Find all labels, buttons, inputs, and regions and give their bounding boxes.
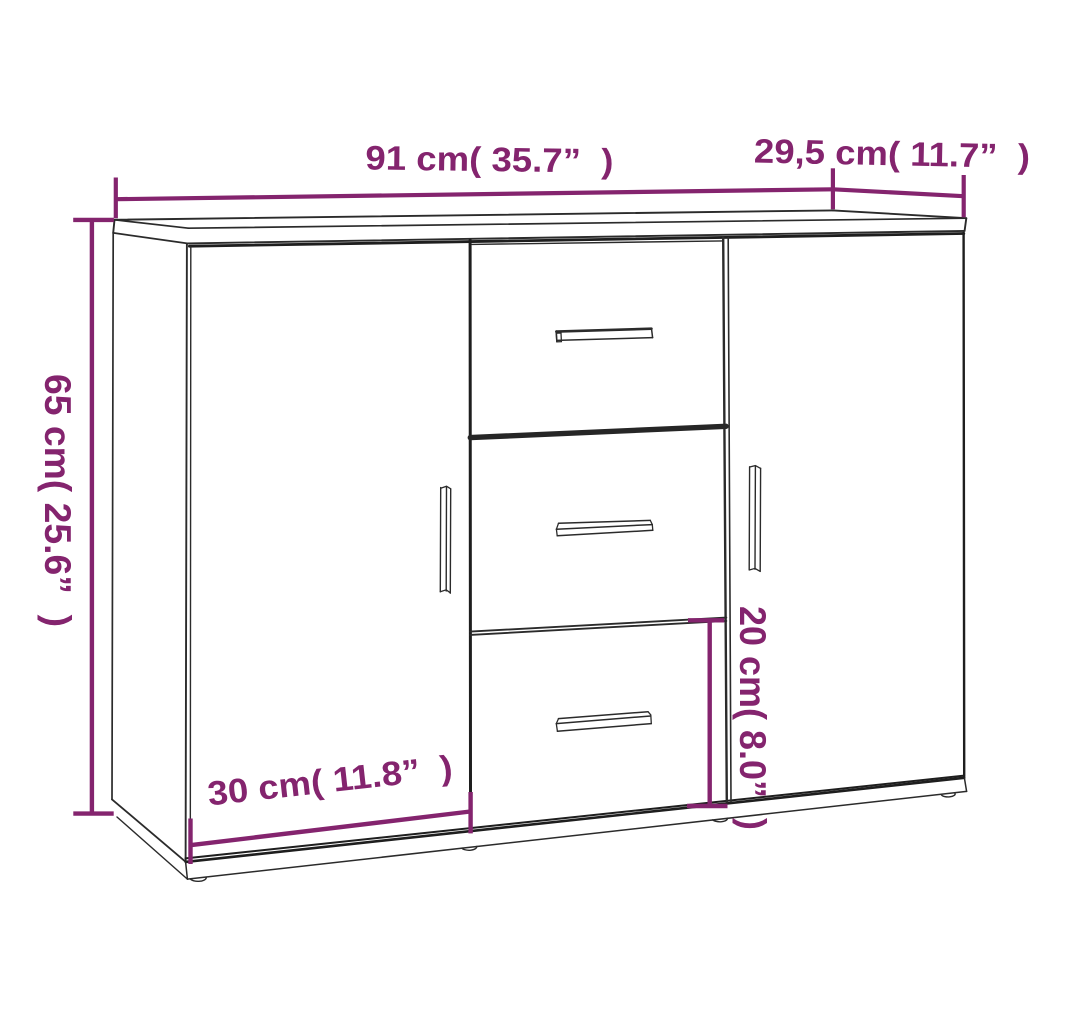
svg-text:20 cm( 8.0” ): 20 cm( 8.0” ) xyxy=(732,606,774,830)
svg-text:29,5 cm( 11.7” ): 29,5 cm( 11.7” ) xyxy=(754,133,1031,177)
svg-text:91 cm( 35.7” ): 91 cm( 35.7” ) xyxy=(365,139,613,180)
svg-text:65 cm( 25.6” ): 65 cm( 25.6” ) xyxy=(37,374,79,627)
